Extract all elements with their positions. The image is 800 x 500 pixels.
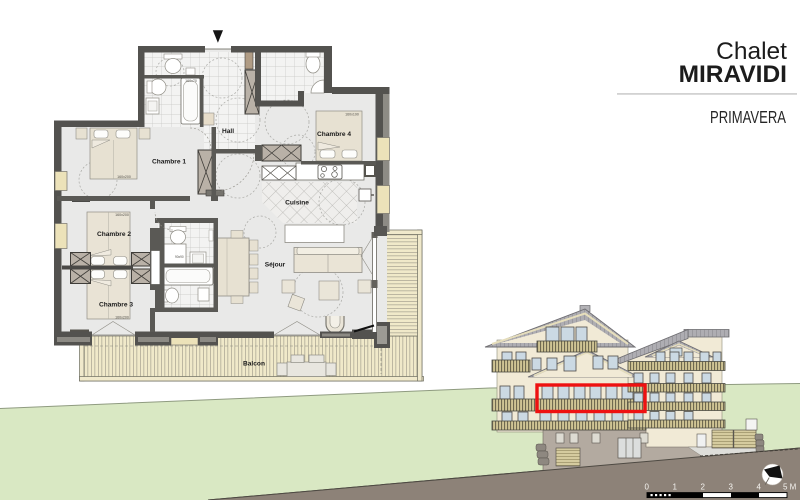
svg-text:4: 4 xyxy=(757,483,762,492)
svg-text:160x190: 160x190 xyxy=(345,113,359,117)
svg-text:PRIMAVERA: PRIMAVERA xyxy=(710,107,786,127)
svg-text:3: 3 xyxy=(729,483,734,492)
svg-text:0: 0 xyxy=(645,483,650,492)
svg-text:90x90: 90x90 xyxy=(175,255,184,259)
svg-text:160x200: 160x200 xyxy=(117,175,131,179)
svg-text:160x200: 160x200 xyxy=(115,213,129,217)
svg-text:160x200: 160x200 xyxy=(115,316,129,320)
svg-text:Cuisine: Cuisine xyxy=(285,200,309,207)
svg-text:MIRAVIDI: MIRAVIDI xyxy=(679,61,787,88)
svg-text:160x70: 160x70 xyxy=(185,79,197,83)
svg-text:Séjour: Séjour xyxy=(265,262,286,269)
svg-text:Chambre 2: Chambre 2 xyxy=(97,231,131,238)
svg-text:Balcon: Balcon xyxy=(243,361,265,368)
svg-text:Hall: Hall xyxy=(222,128,234,135)
svg-text:5 M: 5 M xyxy=(783,483,797,492)
svg-text:Chambre 1: Chambre 1 xyxy=(152,159,186,166)
svg-text:1: 1 xyxy=(673,483,678,492)
svg-text:Chambre 4: Chambre 4 xyxy=(317,131,351,138)
svg-text:Chambre 3: Chambre 3 xyxy=(99,302,133,309)
svg-text:2: 2 xyxy=(701,483,706,492)
